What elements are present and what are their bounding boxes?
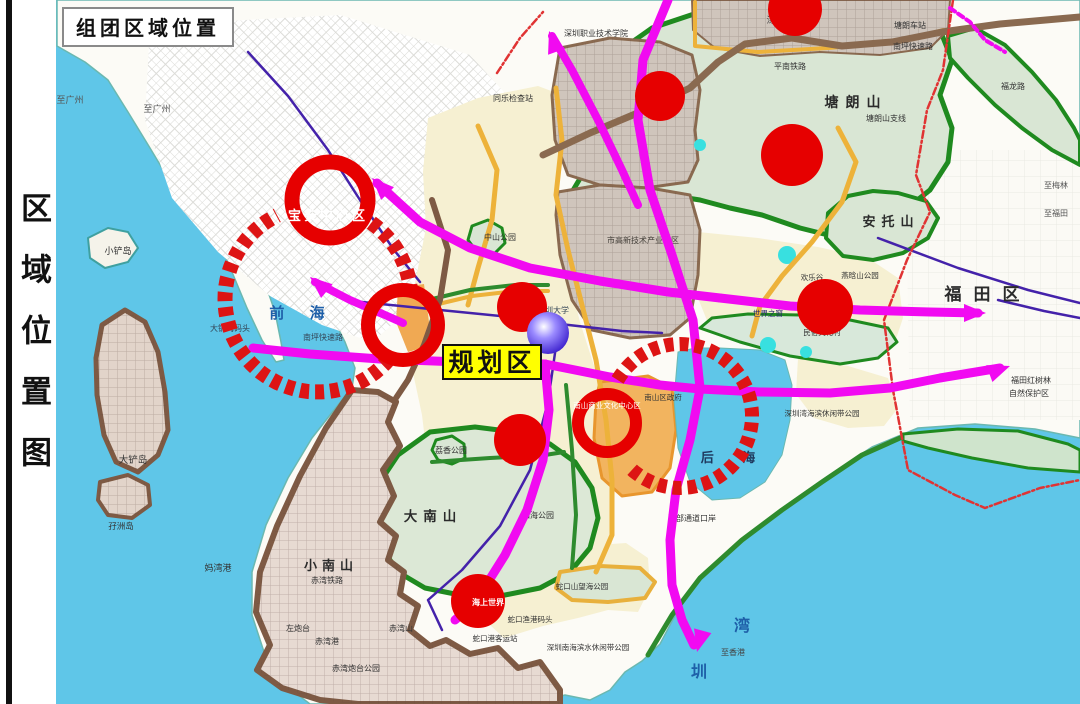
node-window-of-world [797,279,853,335]
page-title-vertical: 区域位置图 [17,192,48,497]
lbl-chiwan-railway: 赤湾铁路 [311,575,343,585]
lbl-lixiang-park: 荔香公园 [435,445,467,455]
lbl-chiwan-hill: 赤湾山 [389,623,413,633]
lbl-bay-zhen: 圳 [691,662,707,681]
lbl-futian-district: 福田区 [944,284,1032,305]
lbl-xiaonanshan: 小南山 [304,558,358,574]
lbl-nanhai-waterfront: 深圳南海滨水休闲带公园 [547,642,630,652]
lbl-nanshan-gov: 南山区政府 [644,392,682,402]
map-canvas: 至广州至广州小铲岛大铲岛孖洲岛大铲湾码头南坪快速路前 海妈湾港小南山赤湾铁路左炮… [0,0,1080,704]
lbl-to-futian: 至福田 [1044,209,1068,218]
lbl-shekou-ferry: 蛇口港客运站 [473,633,518,643]
node-xili [635,71,685,121]
lbl-window-of-world: 世界之窗 [753,308,783,318]
lbl-to-guangzhou-2: 至广州 [56,94,83,106]
lbl-left-fort: 左炮台 [286,623,310,633]
lbl-pingnan-railway: 平南铁路 [774,61,806,71]
lbl-chiwan-port: 赤湾港 [315,636,339,646]
lbl-to-meilin: 至梅林 [1044,180,1068,190]
lbl-nanping-expwy-w: 南坪快速路 [303,332,343,342]
lbl-fulong-road: 福龙路 [1001,81,1025,91]
sidebar-rule-line [6,0,12,704]
lbl-tanglangshan: 塘朗山 [825,94,888,111]
lbl-baoan-center: 宝安中心区 [288,208,368,224]
lbl-tanglang-station: 塘朗车站 [894,20,926,30]
oct-lake-2 [800,346,812,358]
lbl-antuoshan: 安托山 [862,214,919,230]
lbl-bay-leisure-park: 深圳湾海滨休闲带公园 [785,408,860,418]
left-sidebar: 区域位置图 [0,0,56,704]
lbl-tanglang-branch: 塘朗山支线 [866,113,906,123]
lbl-polytechnic: 深圳职业技术学院 [564,28,628,38]
map-title-box: 组团区域位置 [62,7,234,47]
lbl-planning-area: 规划区 [448,348,535,377]
oct-lake-1 [760,337,776,353]
lbl-bay-wan: 湾 [734,616,750,635]
lbl-nanshan-cbd: 南山商业文化中心区 [573,400,641,410]
lbl-tongle-checkpoint: 同乐检查站 [493,93,533,103]
lbl-dananshan: 大南山 [404,508,463,525]
lbl-chiwan-fort-park: 赤湾炮台公园 [332,663,380,673]
lbl-to-guangzhou-1: 至广州 [143,103,170,115]
lbl-mawan-port: 妈湾港 [204,562,231,574]
lbl-zhongshan-park: 中山公园 [484,232,516,242]
lbl-to-hongkong: 至香港 [721,647,745,657]
node-tanglang-west [761,124,823,186]
lbl-shekou-fish-wharf: 蛇口渔港码头 [508,614,553,624]
lbl-nanping-expwy-e: 南坪快速路 [893,41,933,51]
lbl-yanhanshan-park: 燕晗山公园 [841,270,879,280]
lbl-mazhou-island: 孖洲岛 [108,521,134,532]
lbl-mangrove-1: 福田红树林 [1011,375,1051,385]
lbl-mangrove-2: 自然保护区 [1009,388,1049,398]
lbl-xiaochan-island: 小铲岛 [104,245,131,257]
node-nanshan [494,414,546,466]
lbl-sea-world: 海上世界 [472,597,505,607]
lbl-dachan-island: 大铲岛 [119,454,148,466]
lbl-shekou-hill-park: 蛇口山望海公园 [556,581,609,591]
lbl-qianhai: 前 海 [269,304,334,322]
litchi-lake [694,139,706,151]
planning-map-svg: 至广州至广州小铲岛大铲岛孖洲岛大铲湾码头南坪快速路前 海妈湾港小南山赤湾铁路左炮… [0,0,1080,704]
